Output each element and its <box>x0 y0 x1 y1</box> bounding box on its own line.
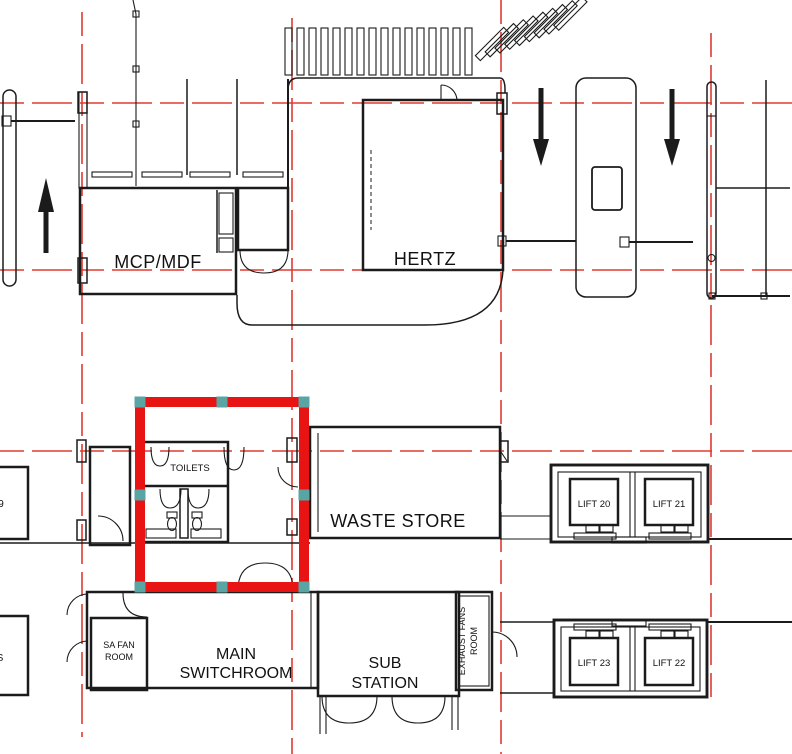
room-label-hertz: HERTZ <box>394 249 456 269</box>
selection-handle-sw[interactable] <box>135 582 146 593</box>
mcp-mdf-room: MCP/MDF <box>78 79 288 294</box>
partial-room-left-mid: 9 <box>0 467 28 539</box>
upper-block: MCP/MDF <box>2 0 790 325</box>
selection-handle-e[interactable] <box>299 490 310 501</box>
partial-room-label: S <box>0 653 4 664</box>
wall-panel <box>142 172 182 177</box>
room-label-main-switchroom-1: MAIN <box>216 646 256 663</box>
wall-panel <box>92 172 132 177</box>
sub-station: SUB STATION <box>318 592 459 734</box>
entrance-capsule <box>2 90 75 286</box>
door-swing <box>160 489 170 508</box>
waste-store-room: WASTE STORE <box>310 427 508 538</box>
room-label-toilets: TOILETS <box>170 463 209 474</box>
sa-fan-room: SA FAN ROOM <box>91 618 147 690</box>
room-label-sa-fan-2: ROOM <box>105 652 133 662</box>
toilets-room: TOILETS <box>143 442 244 542</box>
selection-handle-n[interactable] <box>217 397 228 408</box>
selection-handle-ne[interactable] <box>299 397 310 408</box>
lift-sill <box>574 533 616 539</box>
room-label-sub-station-1: SUB <box>369 655 402 672</box>
hertz-room: HERTZ <box>363 85 507 270</box>
corridor-boundary <box>237 270 503 325</box>
door-swing <box>418 696 445 723</box>
room-label-sub-station-2: STATION <box>352 675 419 692</box>
door-swing <box>349 696 377 723</box>
door-swing <box>67 594 88 615</box>
room-label-lift-22: LIFT 22 <box>653 658 686 669</box>
down-arrow-2 <box>664 89 680 166</box>
room-label-sa-fan-1: SA FAN <box>103 640 135 650</box>
wall-panel <box>190 172 230 177</box>
room-label-lift-23: LIFT 23 <box>578 658 611 669</box>
door-swing <box>198 489 209 508</box>
down-arrow-1 <box>533 88 549 166</box>
room-label-exhaust-1: EXHAUST FANS <box>457 607 467 675</box>
partial-room-left-bottom: S <box>0 616 28 695</box>
lift-block-23-22: LIFT 23 LIFT 22 <box>554 620 707 697</box>
selection-handle-se[interactable] <box>299 582 310 593</box>
wall-panel <box>243 172 283 177</box>
lift-block-20-21: LIFT 20 LIFT 21 <box>551 465 708 543</box>
door-swing <box>123 593 147 617</box>
main-switchroom: MAIN SWITCHROOM <box>87 563 318 688</box>
toilets-lobby <box>278 438 298 535</box>
riser-capsule <box>498 78 693 297</box>
selection-handle-s[interactable] <box>217 582 228 593</box>
lift-sill <box>649 533 691 539</box>
stair-hatch <box>285 28 505 93</box>
door-swing <box>492 632 517 657</box>
node-square <box>620 237 629 247</box>
partial-room-label: 9 <box>0 499 4 510</box>
floor-plan-canvas: MCP/MDF <box>0 0 792 754</box>
room-label-exhaust-2: ROOM <box>469 627 479 655</box>
door-swing <box>98 516 123 541</box>
room-label-lift-21: LIFT 21 <box>653 499 686 510</box>
door-swing <box>67 641 88 662</box>
room-label-mcp-mdf: MCP/MDF <box>114 252 202 272</box>
small-room-right-of-mcp <box>238 188 288 273</box>
door-swing <box>151 447 160 466</box>
selection-handle-w[interactable] <box>135 490 146 501</box>
exhaust-fans-room: EXHAUST FANS ROOM <box>456 592 517 690</box>
right-edge-walls <box>707 80 790 299</box>
cubicle-partition <box>180 489 188 538</box>
bottom-block: MAIN SWITCHROOM SA FAN ROOM S SUB STATIO… <box>0 563 792 734</box>
door-swing <box>160 447 169 466</box>
selection-rectangle[interactable] <box>140 402 304 587</box>
anteroom <box>90 447 130 545</box>
door-swing <box>441 85 457 100</box>
room-label-waste-store: WASTE STORE <box>330 511 466 531</box>
middle-block: 9 TOILETS <box>0 427 792 545</box>
up-arrow <box>38 178 54 253</box>
riser-duct <box>592 167 622 210</box>
utility-polyline <box>133 0 139 186</box>
door-swing <box>188 489 198 508</box>
room-label-main-switchroom-2: SWITCHROOM <box>180 665 293 682</box>
selection-handle-nw[interactable] <box>135 397 146 408</box>
door-swing <box>392 696 418 723</box>
door-swing <box>278 467 298 487</box>
floor-plan-stage: MCP/MDF <box>0 0 792 754</box>
cabinet <box>219 193 233 234</box>
diagonal-hatch <box>475 0 587 61</box>
cabinet <box>219 238 233 252</box>
room-label-lift-20: LIFT 20 <box>578 499 611 510</box>
